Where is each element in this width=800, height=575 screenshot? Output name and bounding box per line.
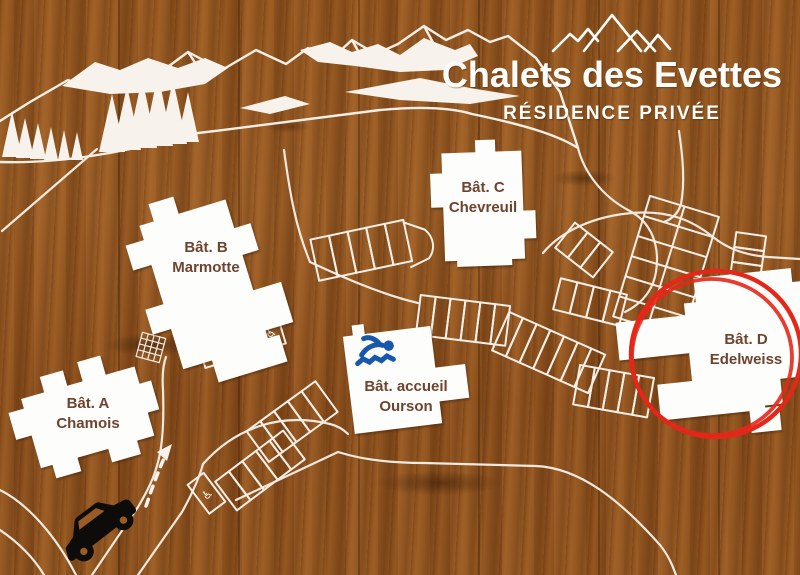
swimmer-icon	[350, 325, 407, 373]
parking-row-mid	[553, 278, 627, 326]
mountains-icon	[553, 15, 670, 51]
parking-row-entrance: ♿	[188, 419, 305, 525]
parking-band-2	[492, 312, 605, 393]
building-a-shape	[0, 344, 170, 486]
wheelchair-icon: ♿	[199, 486, 216, 504]
dashed-arrow-icon	[146, 444, 172, 506]
parking-row-chevreuil	[310, 215, 436, 287]
sign-subtitle: RÉSIDENCE PRIVÉE	[421, 103, 800, 125]
building-c-shape	[429, 138, 537, 268]
building-b-shape	[116, 174, 304, 397]
parking-row-south	[247, 381, 338, 462]
sign-title: Chalets des Evettes	[421, 54, 800, 96]
parking-row-northeast	[555, 223, 613, 278]
resort-map-sign: ♿ ♿ ♿ ♿ ♿	[0, 0, 800, 575]
crosshatch-marker	[136, 332, 166, 362]
